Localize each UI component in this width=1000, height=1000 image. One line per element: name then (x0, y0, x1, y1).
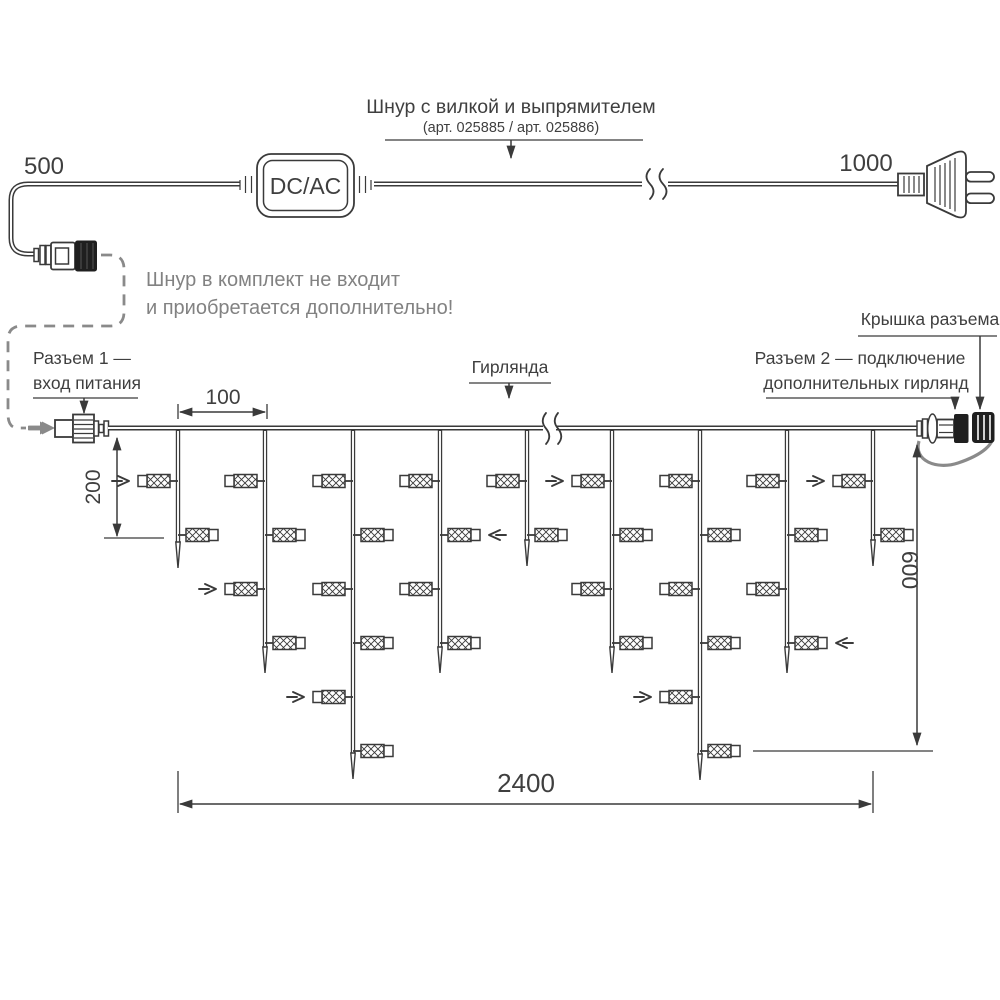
lamp-icon (660, 475, 700, 488)
lamp-cap (572, 476, 581, 487)
lamp-cap (731, 638, 740, 649)
drop-tip (351, 753, 355, 779)
converter-pins-left (240, 176, 252, 193)
lamp-icon (612, 637, 652, 650)
lamp-body (708, 745, 731, 758)
power-cord-right: 1000 (374, 150, 994, 217)
drop-tip (698, 754, 702, 780)
cable-break-icon (660, 169, 667, 199)
garland-wire-break (543, 413, 562, 444)
lamp-icon (700, 529, 740, 542)
lamp-cap (225, 584, 234, 595)
power-cord-articles: (арт. 025885 / арт. 025886) (423, 120, 599, 136)
lamp-icon (747, 475, 787, 488)
cable-path (11, 184, 240, 254)
lamp-body (361, 745, 384, 758)
power-plug-icon (898, 152, 994, 218)
dim-600-value: 600 (897, 551, 923, 589)
dim-100-value: 100 (205, 386, 240, 409)
lamp-body (535, 529, 558, 542)
lamp-icon (353, 529, 393, 542)
lamp-body (795, 529, 818, 542)
garland-drop (400, 429, 506, 673)
drop-tip (263, 647, 267, 673)
lamp-body (881, 529, 904, 542)
lamp-body (581, 475, 604, 488)
dashed-path (8, 255, 124, 428)
plug-prong (966, 172, 994, 182)
garland-drop (287, 429, 393, 779)
lamp-body (409, 475, 432, 488)
lamp-body (361, 529, 384, 542)
drop-tip (525, 540, 529, 566)
dim-200-value: 200 (82, 469, 105, 504)
lamp-cap (818, 638, 827, 649)
lamp-cap (296, 530, 305, 541)
lamp-icon (700, 745, 740, 758)
lamp-body (669, 691, 692, 704)
lamp-icon (612, 529, 652, 542)
lamp-icon (660, 583, 700, 596)
lamp-icon (265, 529, 305, 542)
lamp-icon (807, 475, 873, 488)
lamp-icon (440, 637, 480, 650)
lamp-cap (643, 530, 652, 541)
lamp-body (620, 637, 643, 650)
lamp-body (361, 637, 384, 650)
lamp-body (322, 475, 345, 488)
lamp-icon (112, 475, 178, 488)
drop-tip (610, 647, 614, 673)
icicle-garland-diagram: Шнур с вилкой и выпрямителем (арт. 02588… (0, 0, 1000, 1000)
connector1-line2: вход питания (33, 373, 141, 393)
lamp-cap (296, 638, 305, 649)
connector2-black-body (954, 414, 969, 443)
dim-2400-value: 2400 (497, 768, 555, 798)
drop-tip (785, 647, 789, 673)
converter-pins-right (360, 176, 372, 193)
lamp-cap (209, 530, 218, 541)
lamp-icon (572, 583, 612, 596)
lamp-cap (384, 746, 393, 757)
lamp-body (448, 529, 471, 542)
lamp-cap (225, 476, 234, 487)
lamp-body (795, 637, 818, 650)
lamp-cap (313, 692, 322, 703)
lamp-cap (384, 638, 393, 649)
garland-title: Гирлянда (472, 357, 549, 377)
connector1-power-input (28, 415, 109, 443)
lamp-cap (471, 638, 480, 649)
cap-title: Крышка разъема (861, 309, 1000, 329)
cable-core (11, 184, 240, 254)
lamp-body (409, 583, 432, 596)
lamp-body (669, 475, 692, 488)
drop-tip (871, 540, 875, 566)
lamp-body (147, 475, 170, 488)
connector2-line2: дополнительных гирлянд (763, 373, 968, 393)
connector1-label: Разъем 1 — вход питания (33, 348, 141, 413)
note-line2: и приобретается дополнительно! (146, 297, 453, 319)
lamp-cap (643, 638, 652, 649)
lamp-direction-arrow-icon (807, 476, 824, 486)
lamp-icon (700, 637, 740, 650)
lamp-cap (660, 692, 669, 703)
lamp-cap (471, 530, 480, 541)
lamp-icon (178, 529, 218, 542)
garland-drops (112, 429, 913, 780)
lamp-cap (833, 476, 842, 487)
lamp-body (620, 529, 643, 542)
lamp-body (234, 475, 257, 488)
garland-drop (546, 429, 652, 673)
lamp-icon (199, 583, 265, 596)
lamp-body (322, 691, 345, 704)
lamp-cap (558, 530, 567, 541)
lamp-cap (400, 584, 409, 595)
lamp-direction-arrow-icon (634, 692, 651, 702)
lamp-body (756, 475, 779, 488)
power-cord-title: Шнур с вилкой и выпрямителем (366, 96, 655, 118)
lamp-body (756, 583, 779, 596)
lamp-body (496, 475, 519, 488)
lamp-cap (747, 476, 756, 487)
garland-label: Гирлянда (469, 357, 551, 398)
lamp-icon (313, 475, 353, 488)
drop-tip (176, 542, 180, 568)
lamp-icon (527, 529, 567, 542)
lamp-icon (747, 583, 787, 596)
lamp-icon (787, 637, 853, 650)
lamp-icon (440, 529, 506, 542)
lamp-body (842, 475, 865, 488)
lamp-body (708, 637, 731, 650)
garland-drop (747, 429, 853, 673)
lamp-cap (904, 530, 913, 541)
lamp-body (186, 529, 209, 542)
drop-tip (438, 647, 442, 673)
lamp-icon (400, 475, 440, 488)
lamp-icon (225, 475, 265, 488)
lamp-icon (313, 583, 353, 596)
dc-ac-converter: DC/AC (240, 154, 371, 217)
lamp-direction-arrow-icon (489, 530, 506, 540)
garland-drop (487, 429, 567, 566)
plug-prong (966, 194, 994, 204)
lamp-icon (353, 637, 393, 650)
lamp-cap (818, 530, 827, 541)
lamp-icon (787, 529, 827, 542)
lamp-direction-arrow-icon (199, 584, 216, 594)
dim-curtain-length: 2400 (178, 768, 873, 813)
connector-cap-icon (972, 412, 995, 443)
lamp-icon (400, 583, 440, 596)
lamp-cap (731, 530, 740, 541)
lamp-cap (138, 476, 147, 487)
dashed-connection-route (8, 255, 124, 435)
lamp-cap (660, 476, 669, 487)
not-included-note: Шнур в комплект не входит и приобретаетс… (146, 269, 453, 319)
lamp-body (448, 637, 471, 650)
lamp-direction-arrow-icon (287, 692, 304, 702)
connector2-extension (917, 412, 995, 465)
garland-drop (634, 429, 740, 780)
lamp-cap (400, 476, 409, 487)
lamp-icon (873, 529, 913, 542)
lamp-icon (353, 745, 393, 758)
lamp-body (273, 529, 296, 542)
note-line1: Шнур в комплект не входит (146, 269, 400, 291)
garland-drop (112, 429, 218, 568)
lamp-cap (731, 746, 740, 757)
lamp-icon (546, 475, 612, 488)
dim-curtain-height: 600 (753, 445, 933, 751)
lamp-body (669, 583, 692, 596)
lamp-cap (313, 476, 322, 487)
lamp-cap (660, 584, 669, 595)
lamp-icon (287, 691, 353, 704)
cable-break-icon (647, 169, 654, 199)
lamp-cap (572, 584, 581, 595)
connector-black-cap (75, 241, 97, 272)
lamp-cap (487, 476, 496, 487)
converter-label: DC/AC (270, 173, 342, 199)
wire-break-icon (543, 413, 550, 444)
lamp-body (322, 583, 345, 596)
dim-drop-spacing: 100 (178, 386, 267, 419)
cord-length-1000: 1000 (839, 150, 892, 177)
garland-drop (807, 429, 913, 566)
lamp-icon (265, 637, 305, 650)
cord-output-connector (34, 241, 97, 272)
gray-arrow-head (40, 422, 53, 435)
lamp-direction-arrow-icon (836, 638, 853, 648)
lamp-body (708, 529, 731, 542)
cord-length-500: 500 (24, 153, 64, 180)
lamp-direction-arrow-icon (112, 476, 129, 486)
connector2-line1: Разъем 2 — подключение (755, 348, 966, 368)
power-cord-label: Шнур с вилкой и выпрямителем (арт. 02588… (366, 96, 655, 158)
lamp-body (581, 583, 604, 596)
diagram-canvas: Шнур с вилкой и выпрямителем (арт. 02588… (0, 0, 1000, 1000)
lamp-cap (313, 584, 322, 595)
lamp-icon (634, 691, 700, 704)
lamp-cap (747, 584, 756, 595)
lamp-direction-arrow-icon (546, 476, 563, 486)
connector2-label: Разъем 2 — подключение дополнительных ги… (755, 348, 969, 409)
lamp-body (273, 637, 296, 650)
lamp-cap (384, 530, 393, 541)
garland-drop (199, 429, 305, 673)
power-cord-left: 500 (11, 153, 240, 254)
lamp-body (234, 583, 257, 596)
lamp-icon (487, 475, 527, 488)
connector1-line1: Разъем 1 — (33, 348, 131, 368)
